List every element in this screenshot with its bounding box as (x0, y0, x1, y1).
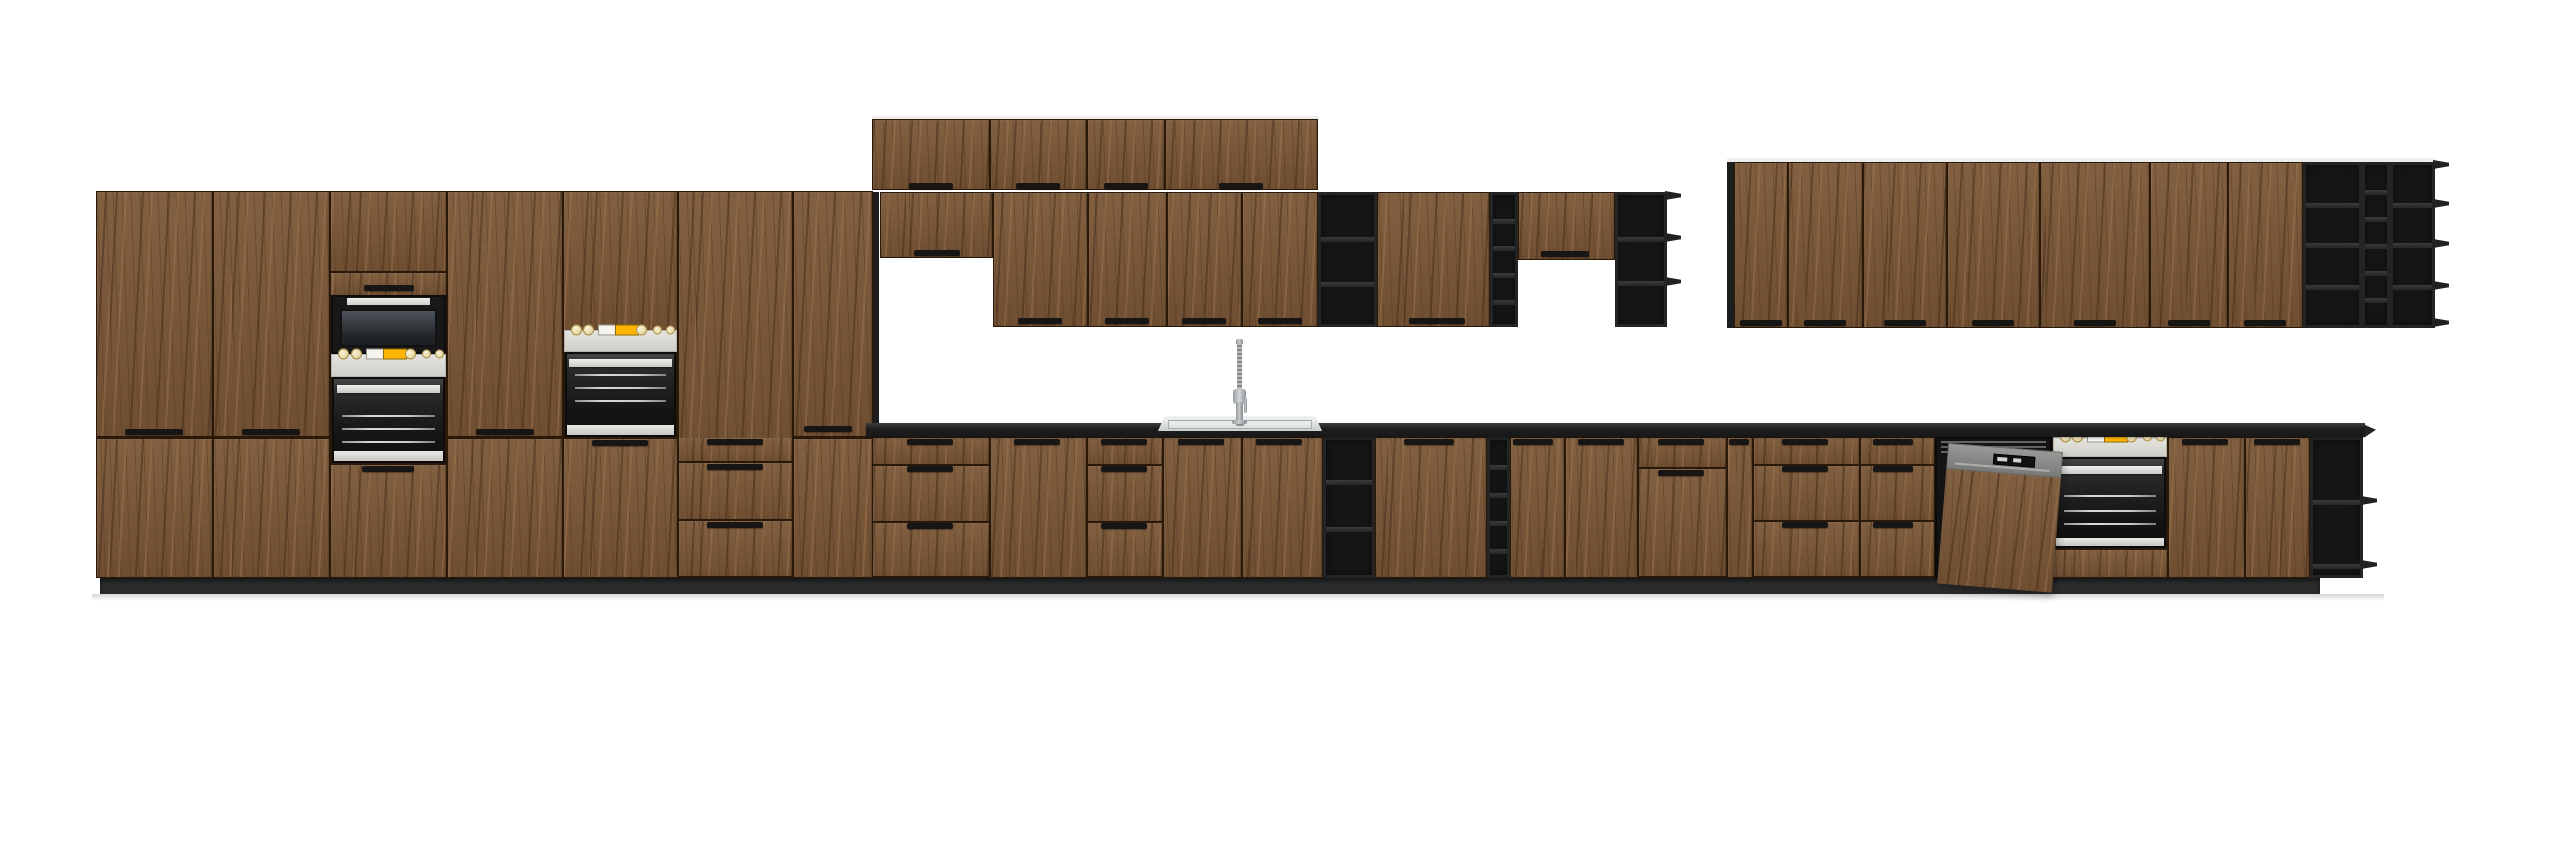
cabinet-handle (1014, 439, 1060, 445)
control-knob (653, 326, 662, 335)
wine-shelf-column (1490, 192, 1518, 327)
oven-rack (575, 400, 666, 402)
shelf-edge-nose (2433, 281, 2449, 290)
cabinet-handle (1782, 439, 1828, 445)
built-in-oven-base-unit (2052, 437, 2168, 578)
shelf-board (1321, 282, 1374, 287)
shelf-edge-nose (1665, 191, 1681, 200)
open-shelf-end-unit (2303, 162, 2362, 328)
base-cabinet (990, 437, 1087, 578)
sink-base-cabinet (1163, 437, 1242, 578)
control-knob (351, 349, 362, 360)
control-knob (405, 349, 416, 360)
tall-pantry-cabinet (213, 191, 330, 578)
drawer-front (679, 463, 792, 519)
wall-cabinet (2040, 162, 2150, 328)
control-knob (338, 349, 349, 360)
sink-base-cabinet (1242, 437, 1323, 578)
base-drawer-unit (1753, 437, 1860, 578)
door-front (881, 193, 992, 257)
shelf-board (2393, 203, 2432, 208)
cabinet-handle (1256, 439, 1302, 445)
open-shelf-end-unit (2390, 162, 2435, 328)
lower-door (794, 439, 872, 577)
control-knob (422, 350, 431, 359)
open-shelf-end-unit (2310, 437, 2363, 578)
door-front (1164, 438, 1241, 577)
shelf-edge-nose (2361, 496, 2377, 505)
shelf-board (2365, 244, 2387, 249)
base-filler-cabinet (1727, 437, 1753, 578)
cabinet-handle (476, 429, 534, 435)
kitchen-render-canvas (0, 0, 2560, 847)
door-front (1948, 163, 2039, 327)
dishwasher-door-panel (1937, 469, 2061, 593)
cabinet-handle (1101, 466, 1147, 472)
door-front (873, 120, 989, 189)
door-front (1089, 193, 1166, 326)
microwave-screen (340, 309, 437, 347)
shelf-board (1618, 237, 1664, 242)
open-shelf-unit (1318, 192, 1377, 327)
cabinet-handle (1578, 439, 1624, 445)
cabinet-handle (1884, 320, 1926, 326)
cabinet-handle (2254, 439, 2300, 445)
cabinet-handle (364, 285, 414, 291)
built-in-oven (565, 352, 676, 437)
cabinet-handle (1104, 183, 1148, 189)
lower-door (97, 439, 212, 577)
cabinet-handle (2074, 320, 2116, 326)
drawer-front (1088, 466, 1162, 521)
door-front (1864, 163, 1946, 327)
door-front (1166, 120, 1317, 189)
cabinet-handle (1782, 466, 1828, 472)
cabinet-handle (1513, 439, 1553, 445)
cabinet-handle (1018, 318, 1062, 324)
cabinet-handle (804, 426, 852, 432)
wall-cabinet (1088, 192, 1167, 327)
door-front (1566, 438, 1637, 577)
oven-rack (2064, 495, 2156, 497)
display-glyph (2013, 458, 2021, 463)
built-in-oven (2054, 457, 2166, 548)
oven-bottom-trim (334, 451, 443, 461)
door-front (991, 120, 1086, 189)
shelf-board (1493, 219, 1515, 224)
upper-door (97, 192, 212, 436)
door-front (2151, 163, 2227, 327)
tower-top-panel (564, 192, 677, 330)
control-knob (636, 325, 647, 336)
cabinet-handle (1541, 251, 1589, 257)
cabinet-handle (907, 523, 953, 529)
wall-cabinet (2150, 162, 2228, 328)
door-front (2229, 163, 2302, 327)
top-wall-cabinet (872, 119, 990, 190)
cabinet-handle (907, 466, 953, 472)
cabinet-handle (1804, 320, 1846, 326)
faucet-lever (1244, 398, 1247, 413)
top-wall-cabinet (990, 119, 1087, 190)
cabinet-handle (1016, 183, 1060, 189)
built-in-oven (332, 377, 445, 463)
wall-cabinet (1242, 192, 1318, 327)
lower-door (564, 439, 677, 577)
cabinet-handle (1219, 183, 1263, 189)
wall-cabinet (1863, 162, 1947, 328)
cabinet-handle (707, 439, 763, 445)
cabinet-handle (1258, 318, 1302, 324)
shelf-edge-nose (2433, 199, 2449, 208)
base-cabinet (1565, 437, 1638, 578)
upper-door (214, 192, 329, 436)
door-front (1519, 193, 1614, 259)
built-in-microwave (331, 295, 446, 354)
base-drawer-unit (872, 437, 990, 578)
cabinet-handle (242, 429, 300, 435)
shelf-board (2393, 285, 2432, 290)
wall-cabinet (993, 192, 1088, 327)
door-front (1728, 438, 1752, 577)
top-wall-cabinet (1165, 119, 1318, 190)
wall-cabinet (2228, 162, 2303, 328)
shelf-edge-nose (2433, 160, 2449, 169)
tall-pantry-cabinet (447, 191, 563, 578)
base-cabinet (2245, 437, 2310, 578)
shelf-board (1326, 480, 1372, 485)
control-knob (571, 325, 582, 336)
cabinet-handle (707, 464, 763, 470)
oven-rack (342, 441, 435, 443)
shelf-board (1618, 281, 1664, 286)
drawer-front (1861, 466, 1934, 520)
tower-top-panel (331, 192, 446, 271)
door-front (1735, 163, 1787, 327)
wine-shelf-column (1487, 437, 1510, 578)
cabinet-handle (1101, 439, 1147, 445)
base-drawer-unit (1860, 437, 1935, 578)
right-run-side-panel (1727, 162, 1734, 328)
door-front (1378, 193, 1489, 326)
lower-door (214, 439, 329, 577)
cabinet-handle (362, 466, 414, 472)
cabinet-handle (1873, 466, 1913, 472)
oven-control-panel (564, 330, 677, 352)
cabinet-handle (1101, 523, 1147, 529)
door-front (2041, 163, 2149, 327)
control-adisp (615, 325, 639, 336)
oven-rack (342, 415, 435, 417)
drawer-front (679, 192, 792, 461)
faucet-spring (1237, 343, 1242, 391)
shelf-board (2313, 564, 2360, 569)
shelf-edge-nose (2433, 239, 2449, 248)
shelf-board (2306, 203, 2359, 208)
drawer-front (873, 523, 989, 576)
cabinet-handle (1178, 439, 1224, 445)
countertop-end-nose (2365, 425, 2376, 437)
lower-door (448, 439, 562, 577)
cabinet-handle (1182, 318, 1226, 324)
shelf-edge-nose (2433, 318, 2449, 327)
oven-bottom-trim (2056, 538, 2164, 546)
oven-handle-bar (337, 385, 441, 393)
control-knob (435, 350, 444, 359)
door-front (1243, 193, 1317, 326)
display-glyph (1997, 457, 2007, 462)
oven-control-panel (331, 354, 446, 377)
shelf-board (1490, 549, 1507, 554)
base-cabinet (1375, 437, 1487, 578)
cabinet-handle (907, 439, 953, 445)
shelf-board (1490, 465, 1507, 470)
faucet-base (1232, 420, 1247, 424)
door-front (1168, 193, 1241, 326)
cabinet-handle (2244, 320, 2286, 326)
shelf-board (2365, 271, 2387, 276)
control-knob (583, 325, 594, 336)
shelf-board (1493, 273, 1515, 278)
open-shelf-unit (1615, 192, 1667, 327)
dishwasher-open-door (1937, 443, 2063, 593)
oven-tower (563, 191, 678, 578)
wall-cabinet (1947, 162, 2040, 328)
cabinet-handle (2168, 320, 2210, 326)
shelf-board (2365, 190, 2387, 195)
shelf-board (1326, 527, 1372, 532)
wine-shelf-column (2362, 162, 2390, 328)
cabinet-handle (1729, 439, 1749, 445)
cabinet-handle (1972, 320, 2014, 326)
shelf-board (2393, 243, 2432, 248)
shelf-edge-nose (1665, 277, 1681, 286)
oven-control-panel (2053, 437, 2167, 457)
flap-door (331, 273, 446, 295)
cabinet-handle (1658, 439, 1704, 445)
short-wall-cabinet (880, 192, 993, 258)
door-front (2246, 438, 2309, 577)
open-shelf-unit (1323, 437, 1375, 578)
oven-microwave-tower (330, 191, 447, 578)
door-front (1088, 120, 1164, 189)
cabinet-handle (909, 183, 953, 189)
wall-cabinet (1377, 192, 1490, 327)
door-front (994, 193, 1087, 326)
cabinet-handle (592, 440, 648, 446)
door-front (1511, 438, 1564, 577)
door-front (1376, 438, 1486, 577)
oven-bottom-trim (567, 425, 674, 435)
oven-rack (575, 374, 666, 376)
cabinet-handle (125, 429, 183, 435)
door-front (1789, 163, 1862, 327)
wall-cabinet (1788, 162, 1863, 328)
upper-door (794, 192, 872, 436)
oven-rack (2064, 523, 2156, 525)
cabinet-handle (1404, 439, 1454, 445)
countertop (866, 423, 2365, 437)
shelf-edge-nose (2361, 560, 2377, 569)
drawer-front (1754, 522, 1859, 576)
cabinet-handle (2182, 439, 2228, 445)
wall-cabinet (1734, 162, 1788, 328)
drawer-front (679, 521, 792, 576)
microwave-trim-bar (347, 298, 430, 305)
shelf-board (2365, 298, 2387, 303)
shelf-edge-nose (1665, 233, 1681, 242)
tall-pantry-cabinet (793, 191, 873, 578)
oven-rack (575, 387, 666, 389)
shelf-board (1493, 300, 1515, 305)
shelf-board (1321, 237, 1374, 242)
top-wall-cabinet (1087, 119, 1165, 190)
wall-cabinet (1167, 192, 1242, 327)
oven-rack (342, 428, 435, 430)
upper-door (448, 192, 562, 436)
base-cabinet (1510, 437, 1565, 578)
cabinet-handle (1740, 320, 1782, 326)
shelf-board (1490, 493, 1507, 498)
floor-shadow (92, 594, 2384, 601)
door-front (2169, 438, 2244, 577)
lower-panel (2053, 550, 2167, 577)
shelf-board (2306, 285, 2359, 290)
cabinet-handle (707, 522, 763, 528)
drawer-front (1639, 469, 1726, 576)
door-front (991, 438, 1086, 577)
control-adisp (383, 349, 407, 360)
base-cabinet (2168, 437, 2245, 578)
shelf-board (1490, 521, 1507, 526)
cabinet-handle (1873, 522, 1913, 528)
drawer-front (873, 466, 989, 521)
cabinet-handle (1782, 522, 1828, 528)
cabinet-handle (1658, 470, 1704, 476)
shelf-board (2313, 500, 2360, 505)
cabinet-handle (1409, 318, 1465, 324)
cabinet-handle (1105, 318, 1149, 324)
drawer-front (1861, 522, 1934, 576)
cabinet-handle (1873, 439, 1913, 445)
base-drawer-door-unit (1638, 437, 1727, 578)
cabinet-handle (914, 250, 960, 256)
shelf-board (1493, 246, 1515, 251)
door-front (1243, 438, 1322, 577)
control-knob (666, 326, 675, 335)
oven-rack (2064, 510, 2156, 512)
drawer-front (1088, 523, 1162, 576)
drawer-front (1754, 466, 1859, 520)
tall-pantry-cabinet (96, 191, 213, 578)
lower-door (331, 465, 446, 577)
oven-handle-bar (569, 359, 671, 367)
base-drawer-unit (1087, 437, 1163, 578)
short-wall-cabinet (1518, 192, 1615, 260)
oven-tower (678, 191, 793, 578)
shelf-board (2306, 243, 2359, 248)
oven-handle-bar (2058, 466, 2161, 474)
shelf-board (2365, 217, 2387, 222)
